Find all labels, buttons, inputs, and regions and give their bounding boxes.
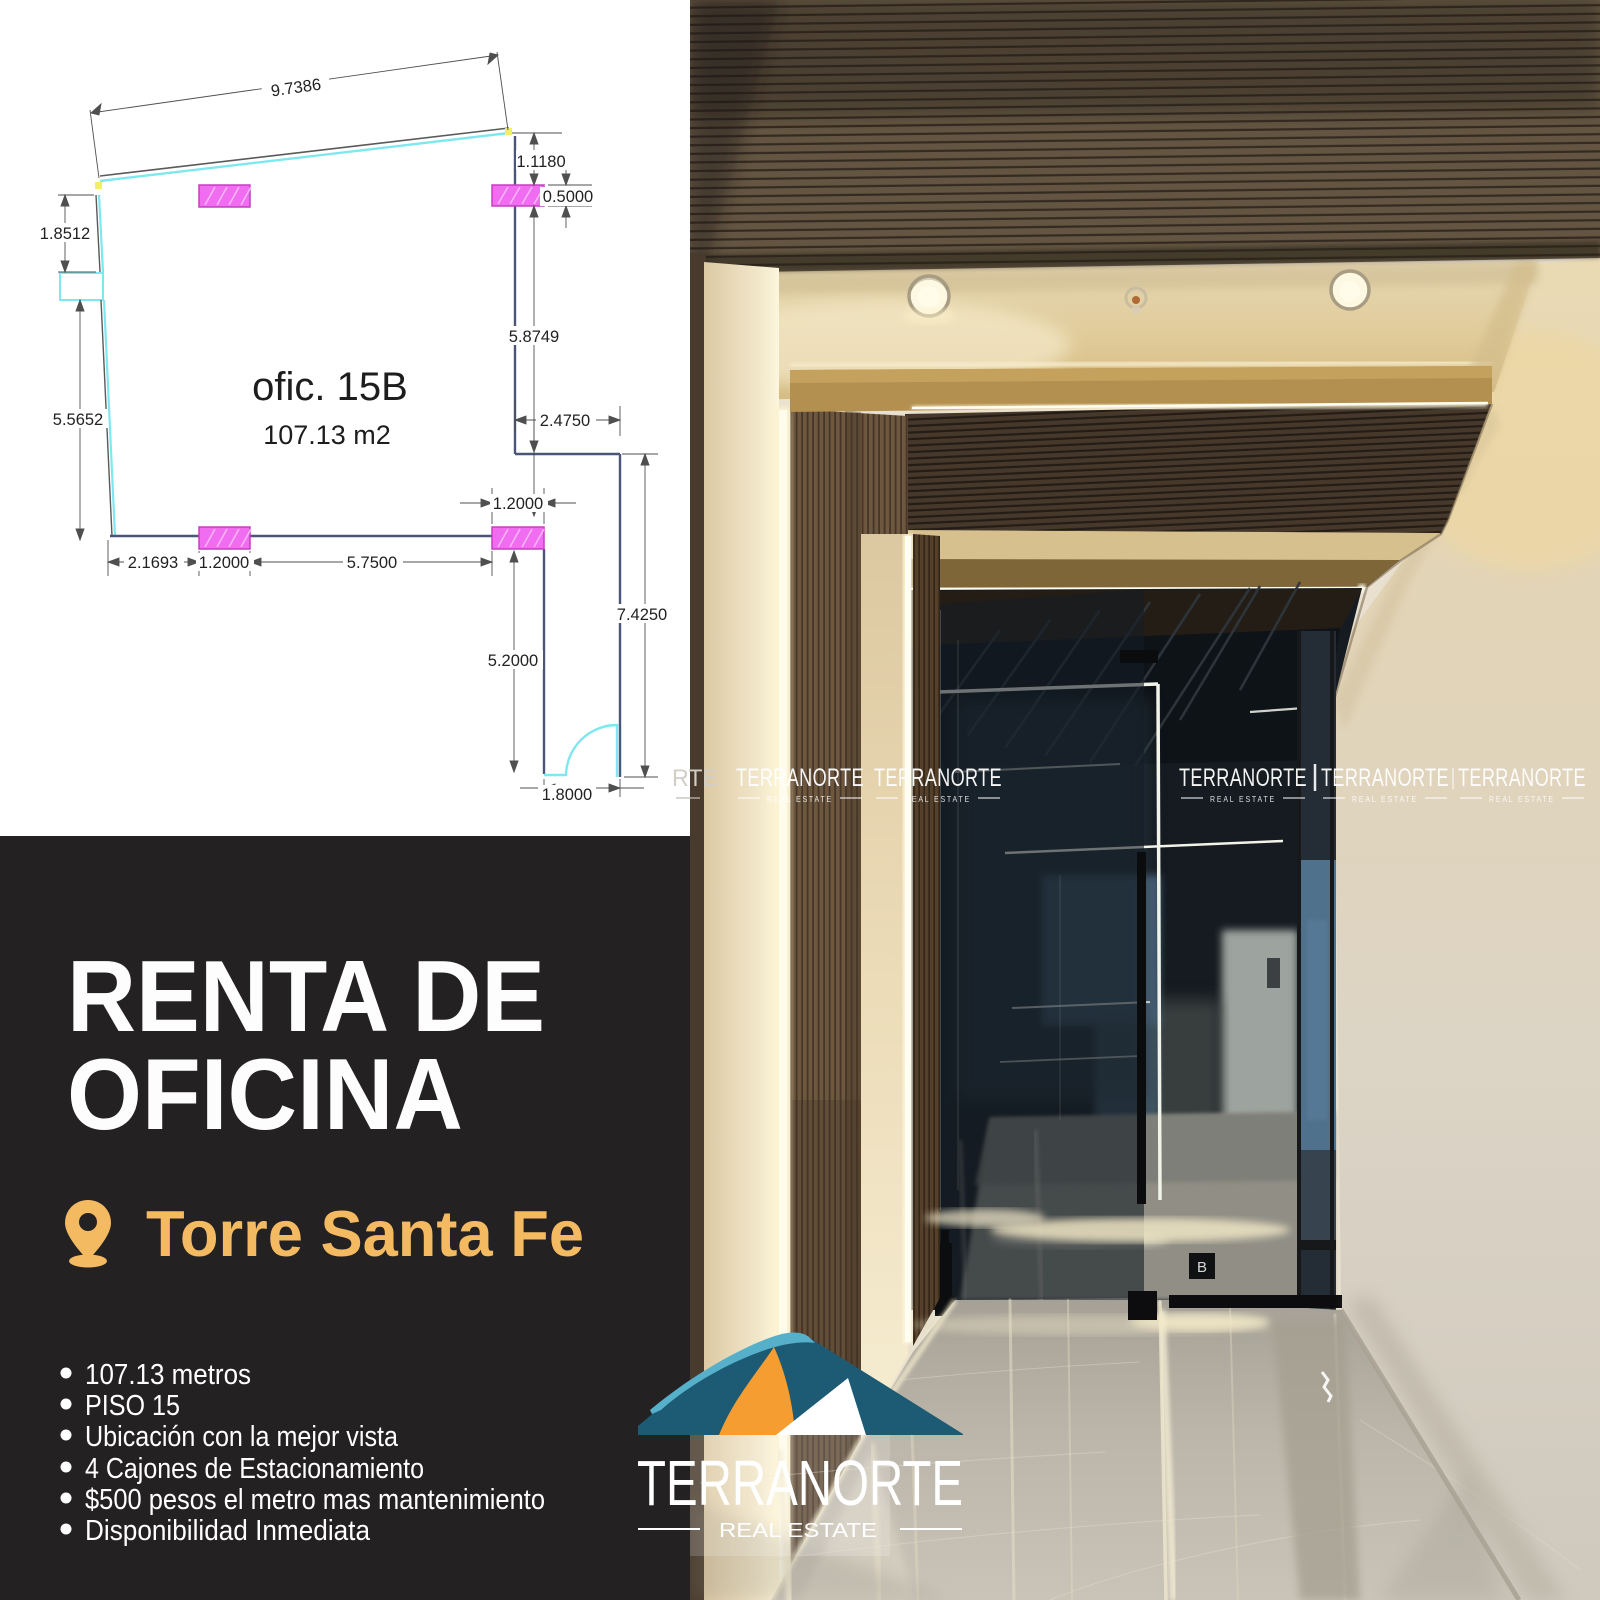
svg-text:107.13 metros: 107.13 metros: [85, 1359, 251, 1391]
svg-text:TERRANORTE: TERRANORTE: [1321, 764, 1449, 792]
svg-text:REAL ESTATE: REAL ESTATE: [1210, 794, 1276, 804]
svg-text:5.7500: 5.7500: [347, 554, 397, 572]
svg-text:ofic. 15B: ofic. 15B: [252, 365, 408, 409]
svg-text:4 Cajones de Estacionamiento: 4 Cajones de Estacionamiento: [85, 1453, 424, 1485]
svg-text:OFICINA: OFICINA: [67, 1039, 463, 1151]
svg-text:REAL ESTATE: REAL ESTATE: [767, 794, 833, 804]
svg-text:REAL ESTATE: REAL ESTATE: [1489, 794, 1555, 804]
svg-text:Disponibilidad Inmediata: Disponibilidad Inmediata: [85, 1515, 371, 1547]
svg-text:REAL ESTATE: REAL ESTATE: [1352, 794, 1418, 804]
svg-text:107.13 m2: 107.13 m2: [263, 420, 391, 450]
svg-text:1.8512: 1.8512: [40, 225, 90, 243]
svg-text:Ubicación con la mejor vista: Ubicación con la mejor vista: [85, 1421, 399, 1453]
svg-text:1.8000: 1.8000: [542, 786, 592, 804]
svg-text:$500 pesos el metro mas manten: $500 pesos el metro mas mantenimiento: [85, 1484, 545, 1516]
svg-text:TERRANORTE: TERRANORTE: [736, 764, 864, 792]
svg-text:1.1180: 1.1180: [516, 153, 565, 171]
svg-text:0.5000: 0.5000: [543, 188, 593, 206]
svg-text:2.1693: 2.1693: [128, 554, 178, 572]
svg-text:TERRANORTE: TERRANORTE: [1458, 764, 1586, 792]
svg-text:TERRANORTE: TERRANORTE: [637, 1447, 963, 1519]
svg-text:TERRANORTE: TERRANORTE: [1179, 764, 1307, 792]
svg-text:1.2000: 1.2000: [493, 495, 543, 513]
svg-text:5.5652: 5.5652: [53, 411, 103, 429]
svg-text:RTE: RTE: [672, 765, 718, 792]
svg-text:5.2000: 5.2000: [488, 652, 538, 670]
svg-text:Torre Santa Fe: Torre Santa Fe: [146, 1197, 584, 1270]
svg-text:2.4750: 2.4750: [540, 412, 590, 430]
svg-text:REAL ESTATE: REAL ESTATE: [905, 794, 971, 804]
svg-text:REAL ESTATE: REAL ESTATE: [719, 1520, 877, 1542]
svg-text:5.8749: 5.8749: [509, 328, 559, 346]
svg-text:1.2000: 1.2000: [199, 554, 249, 572]
svg-text:7.4250: 7.4250: [617, 606, 667, 624]
svg-text:RENTA DE: RENTA DE: [67, 941, 545, 1053]
svg-text:PISO 15: PISO 15: [85, 1390, 180, 1422]
svg-text:B: B: [1197, 1259, 1207, 1276]
svg-text:TERRANORTE: TERRANORTE: [874, 764, 1002, 792]
